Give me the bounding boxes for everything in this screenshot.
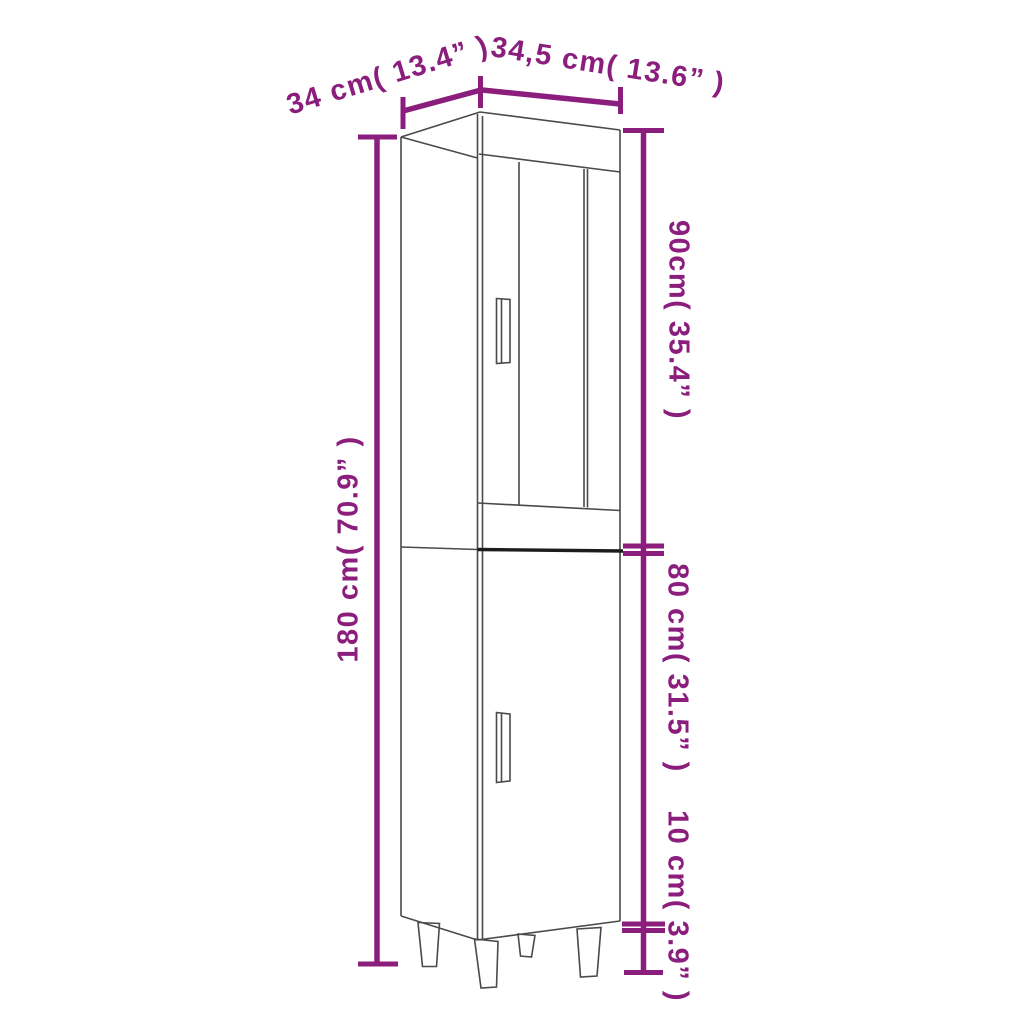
- leg-front-left: [475, 939, 499, 988]
- lower-section-height-label: 80 cm( 31.5” ): [661, 563, 694, 773]
- door-handles: [497, 299, 511, 783]
- leg-back-left: [418, 923, 440, 967]
- upper-section-height-label: 90cm( 35.4” ): [662, 220, 695, 420]
- cabinet-legs: [418, 923, 601, 989]
- cabinet-outline: [401, 112, 620, 941]
- section-heights-dimension-line: [622, 130, 665, 973]
- width-dimension-line: [482, 87, 621, 114]
- leg-height-label: 10 cm( 3.9” ): [661, 810, 694, 1002]
- leg-back-right: [518, 934, 535, 957]
- lower-door-handle: [497, 713, 511, 783]
- cabinet-drawing: [0, 0, 1024, 1024]
- dimension-diagram: 34 cm( 13.4” ) 34,5 cm( 13.6” ) 180 cm( …: [0, 0, 1024, 1024]
- total-height-dimension-label: 180 cm( 70.9” ): [333, 435, 366, 662]
- upper-door-handle: [497, 299, 511, 364]
- cabinet-divider-line: [478, 550, 624, 552]
- leg-front-right: [577, 928, 601, 978]
